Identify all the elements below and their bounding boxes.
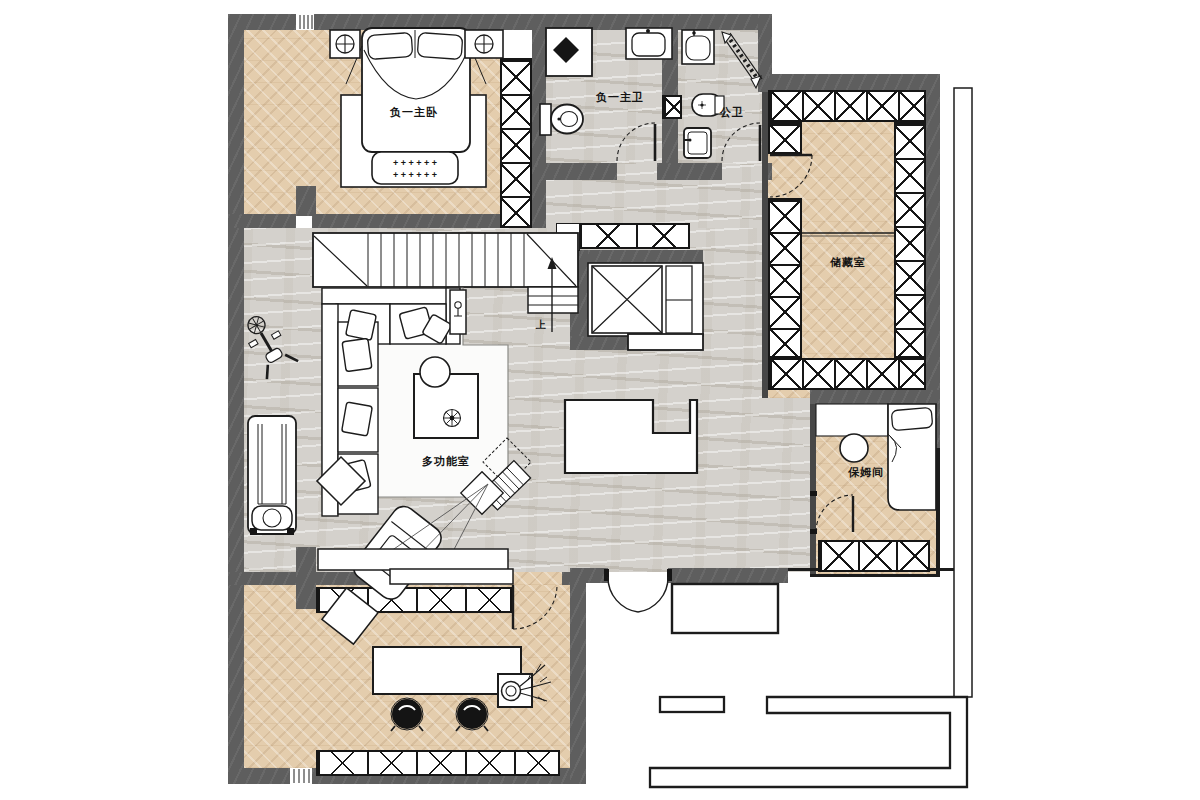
treadmill <box>248 416 296 535</box>
round-stool <box>840 434 868 462</box>
label-multifunction: 多功能室 <box>422 454 470 469</box>
door-nanny <box>810 491 853 534</box>
sink <box>682 30 714 64</box>
label-public-bath: 公卫 <box>720 105 744 120</box>
entry-double-door <box>604 569 672 612</box>
chair <box>391 698 423 731</box>
bench-pattern-row2: + + + + + + <box>393 170 437 180</box>
door-master-bath <box>617 123 655 161</box>
stairs-up-label: 上 <box>535 319 546 330</box>
nanny-closet <box>816 404 888 436</box>
door-public-bath <box>722 123 760 161</box>
hall-bench <box>565 400 697 473</box>
label-storage: 储藏室 <box>830 255 866 270</box>
mop-sink <box>684 128 711 158</box>
nightstand-left <box>330 30 360 58</box>
toilet <box>540 104 583 135</box>
sink <box>626 28 672 59</box>
side-table-lamp <box>450 290 466 334</box>
label-master-bath: 负一主卫 <box>596 90 644 105</box>
chair <box>456 698 488 731</box>
tv-console <box>318 549 513 584</box>
storage-shelf <box>802 233 894 236</box>
door-bottom-room <box>513 585 557 629</box>
furniture-overlay: 上 + + + + + + + + + + + + <box>0 0 1200 800</box>
shower <box>546 28 592 76</box>
single-bed <box>888 404 936 510</box>
corner-shower <box>722 32 762 88</box>
exercise-bike <box>237 309 298 379</box>
bench-pattern-row1: + + + + + + <box>393 158 437 168</box>
entry-cabinet <box>672 584 778 633</box>
label-nanny: 保姆间 <box>848 465 884 480</box>
floor-plan: 上 + + + + + + + + + + + + 负一主卧 负一主卫 公卫 储… <box>0 0 1200 800</box>
nightstand-right <box>465 30 503 58</box>
elevator <box>588 263 703 350</box>
window-ticks <box>294 15 312 783</box>
door-storage <box>770 155 812 197</box>
label-master-bedroom: 负一主卧 <box>390 105 438 120</box>
